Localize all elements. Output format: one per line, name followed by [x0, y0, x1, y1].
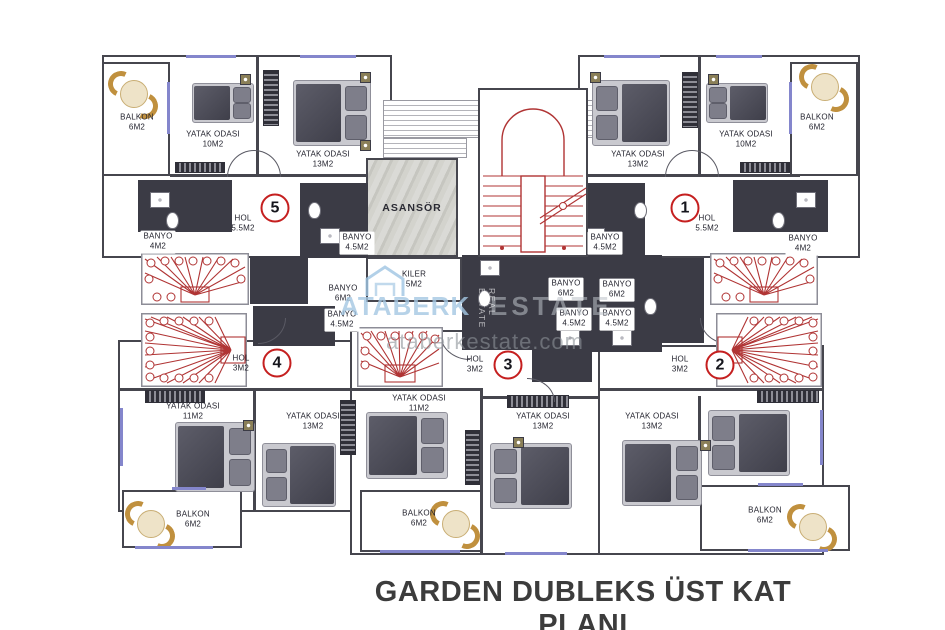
room-label-hol: HOL5.5M2	[695, 214, 718, 235]
patio-set-icon	[801, 65, 847, 111]
sink-icon	[320, 228, 340, 244]
staircase	[710, 253, 818, 305]
toilet-icon	[308, 202, 321, 219]
double-bed	[706, 83, 768, 123]
unit-number-badge-5: 5	[261, 194, 290, 223]
floor-plan: ASANSÖR	[0, 0, 945, 630]
toilet-icon	[166, 212, 179, 229]
room-label-balkon: BALKON6M2	[120, 113, 154, 134]
window	[505, 552, 567, 555]
room-label-yatak-odasi: YATAK ODASI13M2	[611, 150, 665, 171]
closet	[465, 430, 480, 485]
closet	[682, 72, 698, 128]
wall-unit-icon	[243, 420, 254, 431]
wall-unit-icon	[360, 140, 371, 151]
window	[789, 82, 792, 134]
roof-hatch-area	[383, 138, 467, 158]
closet	[175, 162, 225, 173]
room-label-banyo: BANYO4.5M2	[324, 309, 359, 332]
toilet-icon	[634, 202, 647, 219]
room-label-balkon: BALKON6M2	[748, 506, 782, 527]
toilet-icon	[478, 290, 491, 307]
room-label-banyo: BANYO4M2	[140, 231, 175, 254]
closet	[263, 70, 279, 126]
double-bed	[592, 80, 670, 146]
unit-number-badge-2: 2	[706, 351, 735, 380]
double-bed	[708, 410, 790, 476]
room-label-hol: HOL3M2	[232, 354, 249, 375]
window	[380, 550, 460, 553]
staircase	[141, 313, 247, 387]
window	[172, 487, 206, 490]
room-label-banyo: BANYO4.5M2	[587, 232, 622, 255]
room-label-banyo: BANYO4M2	[785, 233, 820, 256]
sink-icon	[796, 192, 816, 208]
room-label-yatak-odasi: YATAK ODASI13M2	[625, 412, 679, 433]
room-label-balkon: BALKON6M2	[800, 113, 834, 134]
room-label-banyo: BANYO6M2	[599, 279, 634, 302]
bathroom-wall-block	[532, 255, 662, 352]
wall-unit-icon	[513, 437, 524, 448]
sink-icon	[480, 260, 500, 276]
wall-unit-icon	[708, 74, 719, 85]
main-staircase	[478, 88, 588, 257]
room-label-hol: HOL5.5M2	[231, 214, 254, 235]
room-label-yatak-odasi: YATAK ODASI13M2	[286, 412, 340, 433]
closet	[757, 390, 819, 403]
patio-set-icon	[789, 505, 835, 551]
unit-number-badge-1: 1	[671, 194, 700, 223]
staircase	[141, 253, 249, 305]
room-label-yatak-odasi: YATAK ODASI13M2	[516, 412, 570, 433]
sink-icon	[150, 192, 170, 208]
double-bed	[293, 80, 371, 146]
staircase	[357, 327, 443, 387]
unit-number-badge-3: 3	[494, 351, 523, 380]
toilet-icon	[772, 212, 785, 229]
wall-unit-icon	[700, 440, 711, 451]
toilet-icon	[644, 298, 657, 315]
patio-set-icon	[127, 502, 173, 548]
double-bed	[622, 440, 702, 506]
elevator: ASANSÖR	[366, 158, 458, 257]
window	[167, 82, 170, 134]
window	[300, 55, 356, 58]
window	[748, 549, 828, 552]
wall-unit-icon	[590, 72, 601, 83]
closet	[740, 162, 790, 173]
bathroom-wall-block	[250, 256, 308, 304]
room-label-banyo: BANYO4.5M2	[556, 308, 591, 331]
room-label-yatak-odasi: YATAK ODASI13M2	[296, 150, 350, 171]
room-label-kiler: KILER5M2	[402, 270, 426, 291]
room-label-yatak-odasi: YATAK ODASI10M2	[719, 130, 773, 151]
sink-icon	[612, 330, 632, 346]
room-label-balkon: BALKON6M2	[402, 509, 436, 530]
elevator-label: ASANSÖR	[382, 202, 442, 214]
room-label-yatak-odasi: YATAK ODASI10M2	[186, 130, 240, 151]
double-bed	[366, 412, 448, 479]
wall-divider	[480, 388, 483, 555]
sink-icon	[560, 330, 580, 346]
plan-title: GARDEN DUBLEKS ÜST KAT PLANI	[332, 576, 834, 630]
room-label-banyo: BANYO6M2	[325, 283, 360, 306]
double-bed	[262, 443, 336, 507]
window	[120, 408, 123, 466]
double-bed	[175, 422, 255, 492]
patio-set-icon	[432, 502, 478, 548]
staircase	[716, 313, 822, 387]
room-label-banyo: BANYO6M2	[548, 278, 583, 301]
patio-set-icon	[110, 72, 156, 118]
bathroom-wall-block	[660, 258, 704, 343]
room-label-hol: HOL3M2	[466, 355, 483, 376]
window	[604, 55, 660, 58]
double-bed	[192, 83, 254, 123]
room-label-banyo: BANYO4.5M2	[339, 232, 374, 255]
window	[820, 410, 823, 465]
room-label-balkon: BALKON6M2	[176, 510, 210, 531]
double-bed	[490, 443, 572, 509]
closet	[340, 400, 356, 455]
room-label-hol: HOL3M2	[671, 355, 688, 376]
bathroom-wall-block	[532, 352, 592, 382]
wall-unit-icon	[240, 74, 251, 85]
window	[758, 483, 803, 486]
room-label-yatak-odasi: YATAK ODASI11M2	[166, 402, 220, 423]
window	[135, 546, 213, 549]
window	[716, 55, 762, 58]
unit-number-badge-4: 4	[263, 349, 292, 378]
wall-unit-icon	[360, 72, 371, 83]
room-label-yatak-odasi: YATAK ODASI11M2	[392, 394, 446, 415]
wall-divider	[352, 388, 482, 391]
window	[186, 55, 236, 58]
wall-divider	[170, 174, 392, 177]
room-label-banyo: BANYO4.5M2	[599, 308, 634, 331]
